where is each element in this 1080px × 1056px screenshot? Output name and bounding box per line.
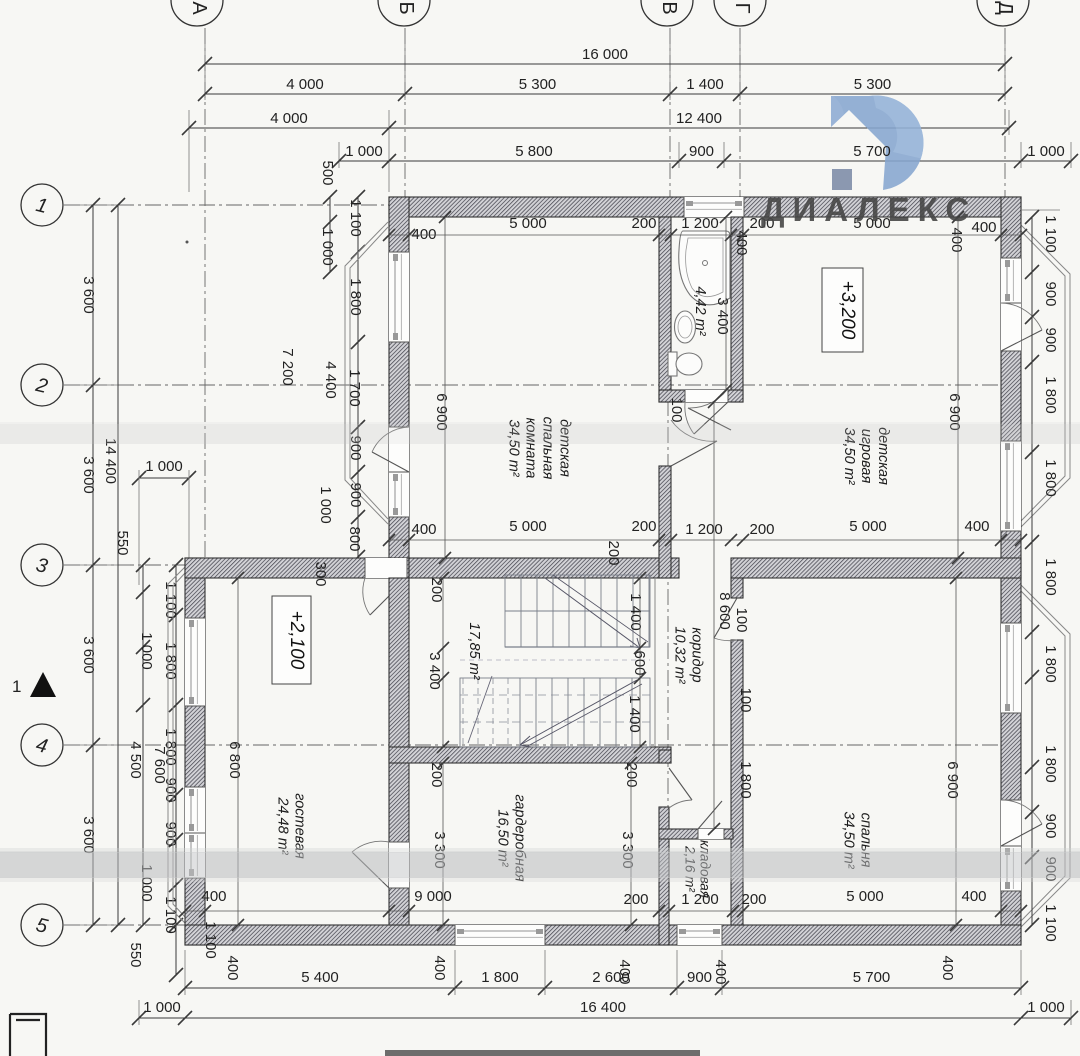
svg-text:1 800: 1 800	[162, 642, 179, 680]
svg-text:3 600: 3 600	[80, 276, 97, 314]
svg-text:+3,200: +3,200	[837, 281, 858, 340]
svg-text:5 000: 5 000	[846, 888, 884, 905]
svg-text:1 700: 1 700	[346, 369, 363, 407]
svg-text:900: 900	[1042, 813, 1059, 838]
svg-text:200: 200	[623, 891, 648, 908]
svg-text:24,48 m²: 24,48 m²	[275, 796, 291, 855]
svg-text:550: 550	[127, 942, 144, 967]
svg-text:400: 400	[961, 888, 986, 905]
svg-text:1 000: 1 000	[1027, 143, 1065, 160]
svg-text:5 000: 5 000	[509, 215, 547, 232]
svg-text:1 200: 1 200	[681, 215, 719, 232]
svg-text:17,85 m²: 17,85 m²	[466, 622, 482, 680]
svg-text:1 800: 1 800	[1042, 745, 1059, 783]
svg-text:900: 900	[687, 969, 712, 986]
svg-text:16 000: 16 000	[582, 46, 628, 63]
svg-text:400: 400	[939, 955, 956, 980]
svg-text:1 800: 1 800	[737, 761, 754, 799]
svg-text:200: 200	[428, 762, 445, 787]
svg-text:1 000: 1 000	[317, 486, 334, 524]
svg-text:5 700: 5 700	[853, 143, 891, 160]
svg-text:10,32 m²: 10,32 m²	[672, 626, 688, 684]
svg-text:550: 550	[114, 530, 131, 555]
svg-text:1 000: 1 000	[345, 143, 383, 160]
svg-text:4 400: 4 400	[322, 361, 339, 399]
svg-text:1 100: 1 100	[1042, 215, 1059, 253]
svg-text:4,42 m²: 4,42 m²	[692, 286, 708, 336]
svg-text:1 800: 1 800	[1042, 459, 1059, 497]
svg-text:1 400: 1 400	[626, 695, 643, 733]
svg-text:1 100: 1 100	[1042, 904, 1059, 942]
svg-text:5 400: 5 400	[301, 969, 339, 986]
svg-text:1 200: 1 200	[681, 891, 719, 908]
svg-text:16 400: 16 400	[580, 999, 626, 1016]
svg-text:100: 100	[668, 397, 685, 422]
svg-text:400: 400	[431, 955, 448, 980]
svg-text:А: А	[188, 1, 210, 15]
svg-text:7 200: 7 200	[279, 348, 296, 386]
svg-text:коридор: коридор	[689, 627, 705, 682]
svg-text:1 800: 1 800	[481, 969, 519, 986]
svg-text:ДИАЛЕКС: ДИАЛЕКС	[761, 191, 977, 228]
svg-text:200: 200	[749, 521, 774, 538]
svg-text:7 600: 7 600	[151, 746, 168, 784]
svg-text:200: 200	[631, 518, 656, 535]
svg-text:Д: Д	[994, 1, 1016, 15]
svg-text:100: 100	[737, 687, 754, 712]
svg-text:400: 400	[948, 227, 965, 252]
svg-text:900: 900	[347, 482, 364, 507]
svg-text:300: 300	[312, 561, 329, 586]
svg-text:1 100: 1 100	[162, 581, 179, 619]
svg-text:1 800: 1 800	[1042, 645, 1059, 683]
svg-text:200: 200	[428, 577, 445, 602]
svg-text:1: 1	[12, 677, 21, 696]
svg-text:В: В	[658, 1, 680, 14]
svg-text:6 800: 6 800	[226, 741, 243, 779]
svg-text:1 000: 1 000	[143, 999, 181, 1016]
svg-text:5 300: 5 300	[854, 76, 892, 93]
svg-text:1 800: 1 800	[1042, 558, 1059, 596]
svg-text:200: 200	[623, 762, 640, 787]
svg-text:6 900: 6 900	[944, 761, 961, 799]
svg-text:1 000: 1 000	[138, 632, 155, 670]
svg-text:1 800: 1 800	[347, 278, 364, 316]
svg-text:14 400: 14 400	[102, 438, 119, 484]
svg-text:4 000: 4 000	[286, 76, 324, 93]
svg-text:200: 200	[741, 891, 766, 908]
svg-text:400: 400	[733, 230, 750, 255]
svg-text:400: 400	[201, 888, 226, 905]
svg-text:Г: Г	[731, 3, 753, 14]
svg-text:400: 400	[411, 226, 436, 243]
svg-text:400: 400	[712, 959, 729, 984]
svg-text:9 000: 9 000	[414, 888, 452, 905]
svg-text:12 400: 12 400	[676, 110, 722, 127]
svg-text:4 500: 4 500	[127, 741, 144, 779]
svg-text:200: 200	[631, 215, 656, 232]
svg-text:400: 400	[224, 955, 241, 980]
svg-text:900: 900	[1042, 327, 1059, 352]
svg-text:400: 400	[964, 518, 989, 535]
svg-text:500: 500	[319, 160, 336, 185]
svg-text:5 800: 5 800	[515, 143, 553, 160]
svg-text:3 400: 3 400	[714, 297, 731, 335]
svg-text:200: 200	[605, 540, 622, 565]
svg-text:1 100: 1 100	[202, 921, 219, 959]
svg-text:400: 400	[411, 521, 436, 538]
svg-text:5 000: 5 000	[849, 518, 887, 535]
svg-text:900: 900	[1042, 281, 1059, 306]
svg-text:400: 400	[616, 959, 633, 984]
svg-text:1 000: 1 000	[319, 228, 336, 266]
svg-text:+2,100: +2,100	[286, 611, 307, 670]
svg-text:1 200: 1 200	[685, 521, 723, 538]
svg-text:1 000: 1 000	[145, 458, 183, 475]
svg-text:3 600: 3 600	[80, 636, 97, 674]
svg-text:5 700: 5 700	[853, 969, 891, 986]
svg-text:4 000: 4 000	[270, 110, 308, 127]
svg-text:1 400: 1 400	[686, 76, 724, 93]
svg-text:1 000: 1 000	[1027, 999, 1065, 1016]
svg-text:Б: Б	[395, 1, 417, 14]
svg-text:8 600: 8 600	[716, 592, 733, 630]
svg-text:900: 900	[162, 821, 179, 846]
svg-text:1 100: 1 100	[347, 199, 364, 237]
svg-text:3 400: 3 400	[426, 652, 443, 690]
svg-text:1 800: 1 800	[1042, 376, 1059, 414]
svg-text:5 300: 5 300	[519, 76, 557, 93]
svg-text:100: 100	[733, 607, 750, 632]
svg-text:1 400: 1 400	[627, 593, 644, 631]
svg-text:800: 800	[346, 526, 363, 551]
svg-text:3 600: 3 600	[80, 456, 97, 494]
svg-text:5 000: 5 000	[509, 518, 547, 535]
svg-text:900: 900	[689, 143, 714, 160]
